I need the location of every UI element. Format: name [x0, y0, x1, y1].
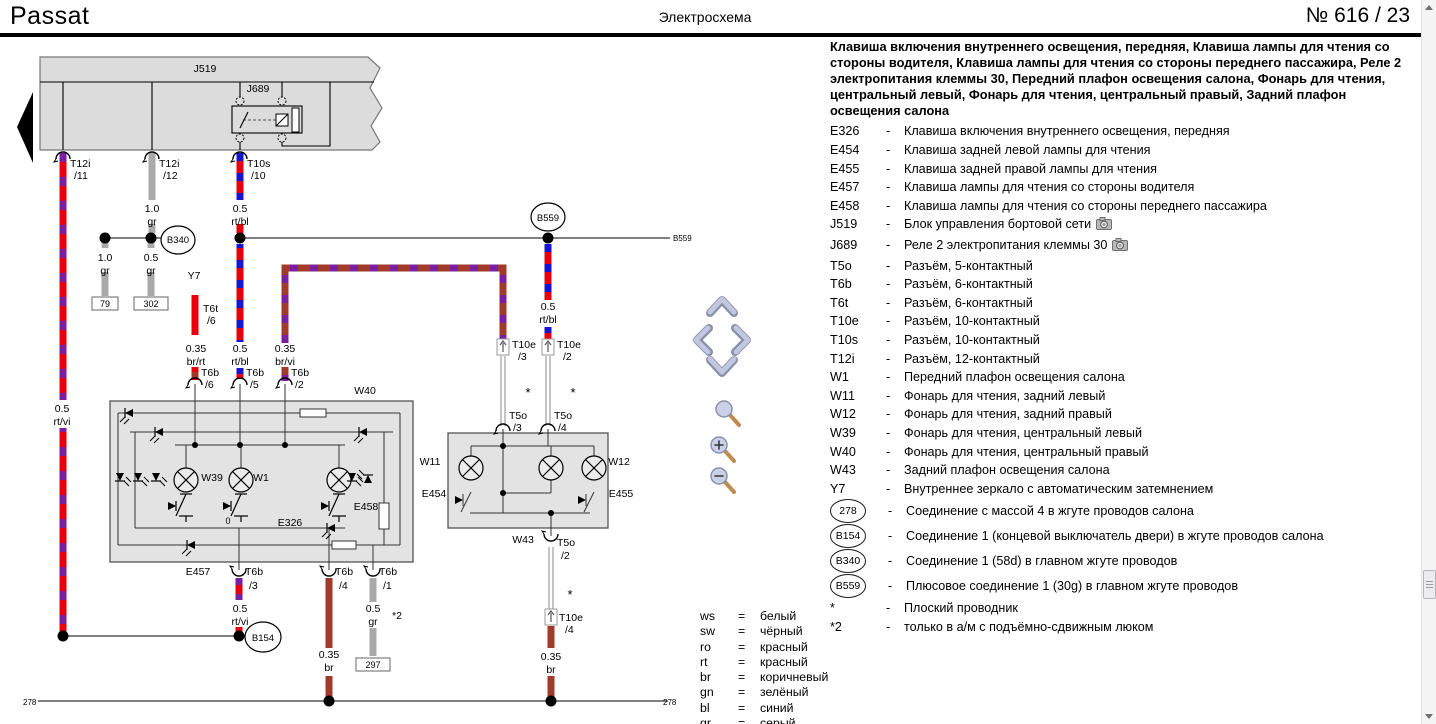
component-desc: только в а/м с подъёмно-сдвижным люком	[904, 618, 1420, 637]
legend-row: E457-Клавиша лампы для чтения со стороны…	[830, 178, 1420, 197]
dash: -	[886, 197, 904, 216]
legend-row: B154-Соединение 1 (концевой выключатель …	[830, 524, 1420, 548]
component-desc: Внутреннее зеркало с автоматическим зате…	[904, 480, 1420, 499]
component-code: E455	[830, 160, 886, 179]
diagram-label: T6b	[291, 367, 309, 379]
dash: -	[886, 331, 904, 350]
diagram-label: T6b	[335, 566, 353, 578]
component-code: *2	[830, 618, 886, 637]
scroll-up-icon	[1425, 5, 1433, 10]
diagram-label: T5o	[554, 410, 572, 422]
wiring-diagram: J519J689T12i/11T12i/12T10s/101.0gr0.5rt/…	[0, 0, 820, 724]
component-code: T12i	[830, 350, 886, 369]
zoom-tool-icon[interactable]	[716, 401, 739, 425]
component-code: T10e	[830, 312, 886, 331]
diagram-label: /3	[513, 422, 522, 434]
component-code: B559	[830, 574, 866, 598]
scroll-up-button[interactable]	[1422, 0, 1436, 15]
diagram-label: T6t	[203, 303, 218, 315]
diagram-label: /12	[163, 170, 178, 182]
diagram-label: T5o	[557, 537, 575, 549]
dash: -	[886, 405, 904, 424]
legend-row: T12i-Разъём, 12-контактный	[830, 350, 1420, 369]
diagram-label: gr	[147, 216, 157, 228]
legend-row: T10e-Разъём, 10-контактный	[830, 312, 1420, 331]
diagram-label: 0	[225, 516, 230, 526]
diagram-label: T6b	[201, 367, 219, 379]
legend-items: E326-Клавиша включения внутреннего освещ…	[830, 122, 1420, 636]
component-code: J689	[830, 236, 886, 255]
dash: -	[886, 215, 904, 234]
color-name: красный	[760, 655, 808, 670]
scroll-down-icon	[1425, 714, 1433, 719]
color-name: чёрный	[760, 624, 803, 639]
diagram-label: 302	[143, 299, 158, 309]
legend-row: B559-Плюсовое соединение 1 (30g) в главн…	[830, 574, 1420, 598]
diagram-label: 0.35	[186, 343, 207, 355]
dash: -	[888, 504, 906, 518]
scrollbar-grip-icon	[1426, 581, 1433, 589]
diagram-label: 0.5	[144, 252, 159, 264]
diagram-label: *2	[392, 610, 402, 622]
dash: -	[886, 599, 904, 618]
scrollbar-thumb[interactable]	[1423, 570, 1436, 599]
diagram-label: J689	[247, 83, 270, 95]
legend-row: E458-Клавиша лампы для чтения со стороны…	[830, 197, 1420, 216]
diagram-label: br	[546, 664, 556, 676]
legend-row: W12-Фонарь для чтения, задний правый	[830, 405, 1420, 424]
app-window: J519J689T12i/11T12i/12T10s/101.0gr0.5rt/…	[0, 0, 1436, 724]
legend-row: E455-Клавиша задней правой лампы для чте…	[830, 160, 1420, 179]
component-desc: Разъём, 5-контактный	[904, 257, 1420, 276]
component-desc: Соединение 1 (58d) в главном жгуте прово…	[906, 554, 1420, 568]
color-name: коричневый	[760, 670, 828, 685]
legend-row: B340-Соединение 1 (58d) в главном жгуте …	[830, 549, 1420, 573]
diagram-label: /4	[558, 422, 567, 434]
component-code: 278	[830, 499, 866, 523]
color-key-row: ws=белый	[700, 609, 828, 624]
component-code: W12	[830, 405, 886, 424]
component-code: E457	[830, 178, 886, 197]
dash: -	[886, 368, 904, 387]
camera-icon[interactable]	[1096, 217, 1112, 236]
equals: =	[738, 670, 760, 685]
diagram-label: /6	[207, 315, 216, 327]
wire-color-key: ws=белыйsw=чёрныйro=красныйrt=красныйbr=…	[700, 609, 828, 724]
color-abbr: br	[700, 670, 738, 685]
color-key-row: sw=чёрный	[700, 624, 828, 639]
component-desc: Плюсовое соединение 1 (30g) в главном жг…	[906, 579, 1420, 593]
component-code: B340	[830, 549, 866, 573]
component-desc: Разъём, 10-контактный	[904, 331, 1420, 350]
diagram-label: B559	[537, 213, 559, 224]
dash: -	[886, 275, 904, 294]
component-desc: Разъём, 6-контактный	[904, 294, 1420, 313]
diagram-label: rt/bl	[231, 216, 249, 228]
component-code: J519	[830, 215, 886, 234]
component-desc: Передний плафон освещения салона	[904, 368, 1420, 387]
diagram-label: W11	[420, 456, 441, 468]
diagram-label: *	[525, 385, 530, 400]
diagram-label: gr	[146, 265, 156, 277]
diagram-labels: J519J689T12i/11T12i/12T10s/101.0gr0.5rt/…	[23, 63, 692, 707]
diagram-label: B340	[167, 235, 189, 246]
diagram-label: /4	[565, 624, 574, 636]
vertical-scrollbar[interactable]	[1421, 0, 1436, 724]
color-abbr: bl	[700, 701, 738, 716]
dash: -	[886, 443, 904, 462]
color-name: красный	[760, 640, 808, 655]
diagram-label: /2	[561, 550, 570, 562]
diagram-label: 0.35	[541, 651, 562, 663]
dash: -	[888, 529, 906, 543]
legend-row: 278-Соединение с массой 4 в жгуте провод…	[830, 499, 1420, 523]
component-code: W11	[830, 387, 886, 406]
equals: =	[738, 701, 760, 716]
page-title: Электросхема	[0, 9, 1410, 25]
diagram-label: J519	[194, 63, 217, 75]
diagram-label: 0.5	[366, 603, 381, 615]
dash: -	[886, 141, 904, 160]
diagram-label: T12i	[70, 158, 90, 170]
color-abbr: ws	[700, 609, 738, 624]
diagram-label: T10e	[559, 612, 583, 624]
legend-row: *-Плоский проводник	[830, 599, 1420, 618]
diagram-label: 278	[663, 698, 677, 707]
diagram-label: W43	[512, 534, 534, 546]
diagram-label: T10e	[512, 339, 536, 351]
component-desc: Фонарь для чтения, задний левый	[904, 387, 1420, 406]
legend-row: E454-Клавиша задней левой лампы для чтен…	[830, 141, 1420, 160]
dash: -	[886, 424, 904, 443]
component-code: E454	[830, 141, 886, 160]
component-desc: Фонарь для чтения, задний правый	[904, 405, 1420, 424]
diagram-label: rt/bl	[539, 314, 557, 326]
diagram-label: *	[570, 385, 575, 400]
component-code: T10s	[830, 331, 886, 350]
pan-up-icon[interactable]	[710, 299, 734, 313]
page-header: Passat Электросхема № 616 / 23	[0, 0, 1436, 37]
diagram-label: gr	[368, 616, 378, 628]
component-desc: Соединение с массой 4 в жгуте проводов с…	[906, 504, 1420, 518]
diagram-label: W39	[201, 472, 223, 484]
component-desc: Плоский проводник	[904, 599, 1420, 618]
color-key-row: gn=зелёный	[700, 685, 828, 700]
dash: -	[886, 618, 904, 637]
component-code: T6t	[830, 294, 886, 313]
color-name: белый	[760, 609, 796, 624]
diagram-label: E455	[609, 488, 634, 500]
diagram-label: 0.5	[55, 403, 70, 415]
zoom-out-icon[interactable]	[711, 468, 734, 492]
diagram-label: W40	[354, 385, 376, 397]
component-desc: Разъём, 12-контактный	[904, 350, 1420, 369]
pan-left-icon[interactable]	[696, 328, 709, 352]
diagram-label: W1	[253, 472, 269, 484]
legend-row: W39-Фонарь для чтения, центральный левый	[830, 424, 1420, 443]
zoom-in-icon[interactable]	[711, 437, 734, 461]
legend-row: J519-Блок управления бортовой сети	[830, 215, 1420, 236]
diagram-label: /4	[339, 580, 348, 592]
diagram-label: /2	[295, 379, 304, 391]
legend-row: *2-только в а/м с подъёмно-сдвижным люко…	[830, 618, 1420, 637]
diagram-label: /5	[250, 379, 259, 391]
diagram-label: T6b	[379, 566, 397, 578]
diagram-label: /11	[74, 170, 88, 182]
component-desc: Клавиша задней правой лампы для чтения	[904, 160, 1420, 179]
scroll-down-button[interactable]	[1422, 709, 1436, 724]
page-number: № 616 / 23	[1306, 4, 1410, 28]
component-desc: Разъём, 10-контактный	[904, 312, 1420, 331]
pan-right-icon[interactable]	[735, 328, 748, 352]
legend-row: E326-Клавиша включения внутреннего освещ…	[830, 122, 1420, 141]
diagram-label: Y7	[188, 270, 201, 282]
equals: =	[738, 624, 760, 639]
dash: -	[886, 461, 904, 480]
equals: =	[738, 655, 760, 670]
diagram-nav	[696, 299, 748, 492]
diagram-label: /2	[563, 351, 572, 363]
legend-row: T6b-Разъём, 6-контактный	[830, 275, 1420, 294]
component-desc: Клавиша лампы для чтения со стороны пере…	[904, 197, 1420, 216]
dash: -	[886, 178, 904, 197]
diagram-label: 0.35	[275, 343, 296, 355]
diagram-label: 297	[365, 660, 380, 670]
diagram-label: 0.5	[233, 203, 248, 215]
color-abbr: ro	[700, 640, 738, 655]
color-key-row: gr=серый	[700, 716, 828, 724]
color-name: зелёный	[760, 685, 808, 700]
component-desc: Реле 2 электропитания клеммы 30	[904, 236, 1420, 257]
dash: -	[888, 579, 906, 593]
diagram-label: br	[324, 662, 334, 674]
diagram-label: T5o	[509, 410, 527, 422]
color-name: серый	[760, 716, 796, 724]
diagram-label: 0.35	[319, 649, 340, 661]
legend-row: Y7-Внутреннее зеркало с автоматическим з…	[830, 480, 1420, 499]
component-desc: Блок управления бортовой сети	[904, 215, 1420, 236]
color-key-row: br=коричневый	[700, 670, 828, 685]
component-desc: Разъём, 6-контактный	[904, 275, 1420, 294]
diagram-label: T6b	[246, 367, 264, 379]
diagram-label: /6	[205, 379, 214, 391]
page-back-arrow[interactable]	[17, 92, 33, 163]
diagram-label: E458	[354, 501, 379, 513]
diagram-label: *	[567, 587, 572, 602]
color-abbr: sw	[700, 624, 738, 639]
diagram-label: B154	[252, 633, 274, 644]
component-code: Y7	[830, 480, 886, 499]
diagram-label: E457	[186, 566, 211, 578]
diagram-label: 79	[100, 299, 110, 309]
dash: -	[886, 480, 904, 499]
legend-row: W40-Фонарь для чтения, центральный правы…	[830, 443, 1420, 462]
color-abbr: gr	[700, 716, 738, 724]
dash: -	[886, 257, 904, 276]
component-desc: Соединение 1 (концевой выключатель двери…	[906, 529, 1420, 543]
dash: -	[886, 122, 904, 141]
dash: -	[886, 387, 904, 406]
legend-row: W43-Задний плафон освещения салона	[830, 461, 1420, 480]
diagram-label: T6b	[245, 566, 263, 578]
color-key-row: bl=синий	[700, 701, 828, 716]
dash: -	[888, 554, 906, 568]
component-desc: Клавиша лампы для чтения со стороны води…	[904, 178, 1420, 197]
diagram-label: E326	[278, 517, 303, 529]
dash: -	[886, 312, 904, 331]
pan-down-icon[interactable]	[710, 359, 734, 373]
legend-row: W1-Передний плафон освещения салона	[830, 368, 1420, 387]
diagram-label: /1	[383, 580, 392, 592]
component-code: W1	[830, 368, 886, 387]
diagram-label: /3	[518, 351, 527, 363]
legend-row: T10s-Разъём, 10-контактный	[830, 331, 1420, 350]
component-desc: Задний плафон освещения салона	[904, 461, 1420, 480]
component-code: E458	[830, 197, 886, 216]
color-abbr: rt	[700, 655, 738, 670]
component-code: E326	[830, 122, 886, 141]
legend-row: T5o-Разъём, 5-контактный	[830, 257, 1420, 276]
dash: -	[886, 294, 904, 313]
diagram-label: gr	[100, 265, 110, 277]
component-code: *	[830, 599, 886, 618]
component-code: W43	[830, 461, 886, 480]
color-key-row: rt=красный	[700, 655, 828, 670]
diagram-label: E454	[422, 488, 447, 500]
legend-row: T6t-Разъём, 6-контактный	[830, 294, 1420, 313]
diagram-label: B559	[673, 234, 692, 243]
component-desc: Клавиша включения внутреннего освещения,…	[904, 122, 1420, 141]
diagram-label: W12	[608, 456, 630, 468]
diagram-label: T10s	[247, 158, 270, 170]
camera-icon[interactable]	[1112, 238, 1128, 257]
component-code: B154	[830, 524, 866, 548]
component-code: T5o	[830, 257, 886, 276]
legend-intro: Клавиша включения внутреннего освещения,…	[830, 39, 1420, 119]
diagram-label: rt/vi	[54, 416, 71, 428]
diagram-label: 0.5	[233, 603, 248, 615]
component-legend: Клавиша включения внутреннего освещения,…	[830, 39, 1420, 637]
color-abbr: gn	[700, 685, 738, 700]
component-desc: Клавиша задней левой лампы для чтения	[904, 141, 1420, 160]
diagram-label: 1.0	[98, 252, 113, 264]
legend-row: J689-Реле 2 электропитания клеммы 30	[830, 236, 1420, 257]
diagram-label: /3	[249, 580, 258, 592]
equals: =	[738, 716, 760, 724]
diagram-label: 1.0	[145, 203, 160, 215]
diagram-label: rt/vi	[232, 616, 249, 628]
legend-row: W11-Фонарь для чтения, задний левый	[830, 387, 1420, 406]
diagram-label: 0.5	[233, 343, 248, 355]
diagram-label: T10e	[557, 339, 581, 351]
component-code: W39	[830, 424, 886, 443]
component-desc: Фонарь для чтения, центральный левый	[904, 424, 1420, 443]
dash: -	[886, 160, 904, 179]
color-key-row: ro=красный	[700, 640, 828, 655]
dash: -	[886, 350, 904, 369]
equals: =	[738, 609, 760, 624]
component-code: T6b	[830, 275, 886, 294]
diagram-label: 0.5	[541, 301, 556, 313]
diagram-label: /10	[251, 170, 266, 182]
color-name: синий	[760, 701, 794, 716]
dash: -	[886, 236, 904, 255]
component-desc: Фонарь для чтения, центральный правый	[904, 443, 1420, 462]
component-code: W40	[830, 443, 886, 462]
diagram-label: 278	[23, 698, 37, 707]
diagram-label: T12i	[159, 158, 179, 170]
w43-box	[448, 429, 608, 536]
equals: =	[738, 640, 760, 655]
equals: =	[738, 685, 760, 700]
